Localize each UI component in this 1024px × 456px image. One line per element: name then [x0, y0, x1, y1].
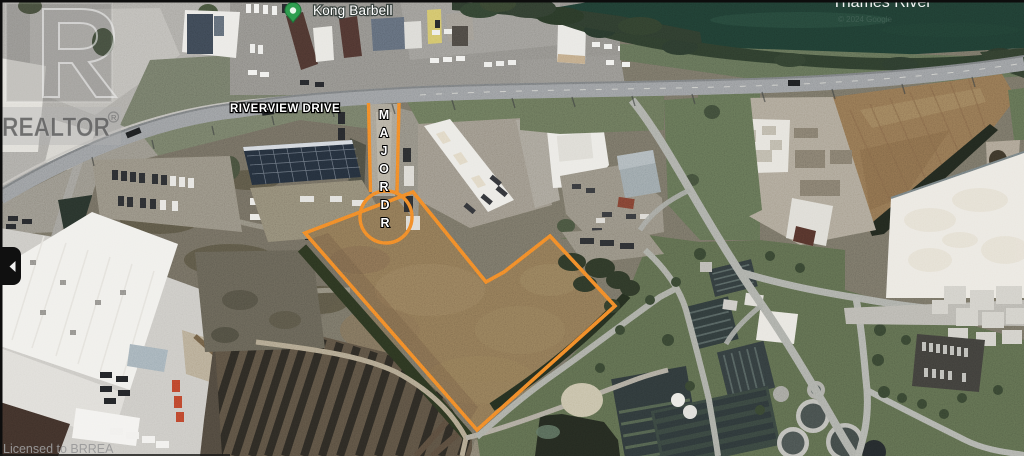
svg-text:R: R: [111, 113, 117, 122]
svg-text:RIVERVIEW DRIVE: RIVERVIEW DRIVE: [230, 103, 340, 115]
svg-text:A: A: [379, 126, 388, 140]
svg-text:R: R: [379, 180, 388, 194]
svg-text:J: J: [381, 144, 388, 158]
svg-text:R: R: [380, 216, 389, 230]
svg-text:REALTOR: REALTOR: [2, 112, 110, 142]
svg-text:Kong Barbell: Kong Barbell: [313, 3, 393, 18]
svg-text:D: D: [380, 198, 389, 212]
svg-text:M: M: [379, 108, 389, 122]
svg-text:© 2024 Google: © 2024 Google: [838, 15, 892, 24]
svg-text:O: O: [379, 162, 389, 176]
svg-text:Licensed to BRREA: Licensed to BRREA: [3, 442, 114, 456]
